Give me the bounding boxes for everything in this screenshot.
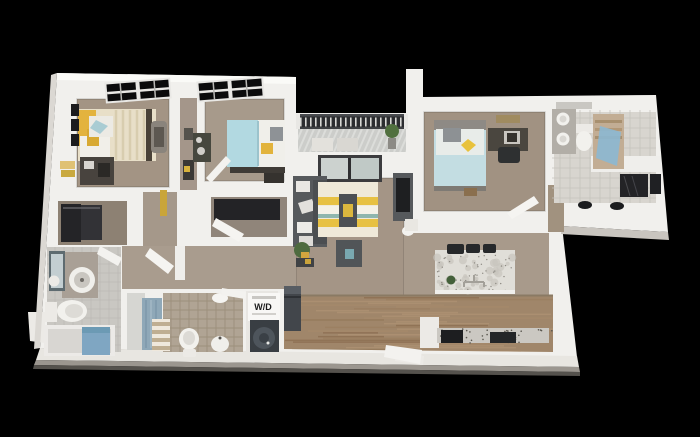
svg-text:W/D: W/D xyxy=(254,302,272,312)
